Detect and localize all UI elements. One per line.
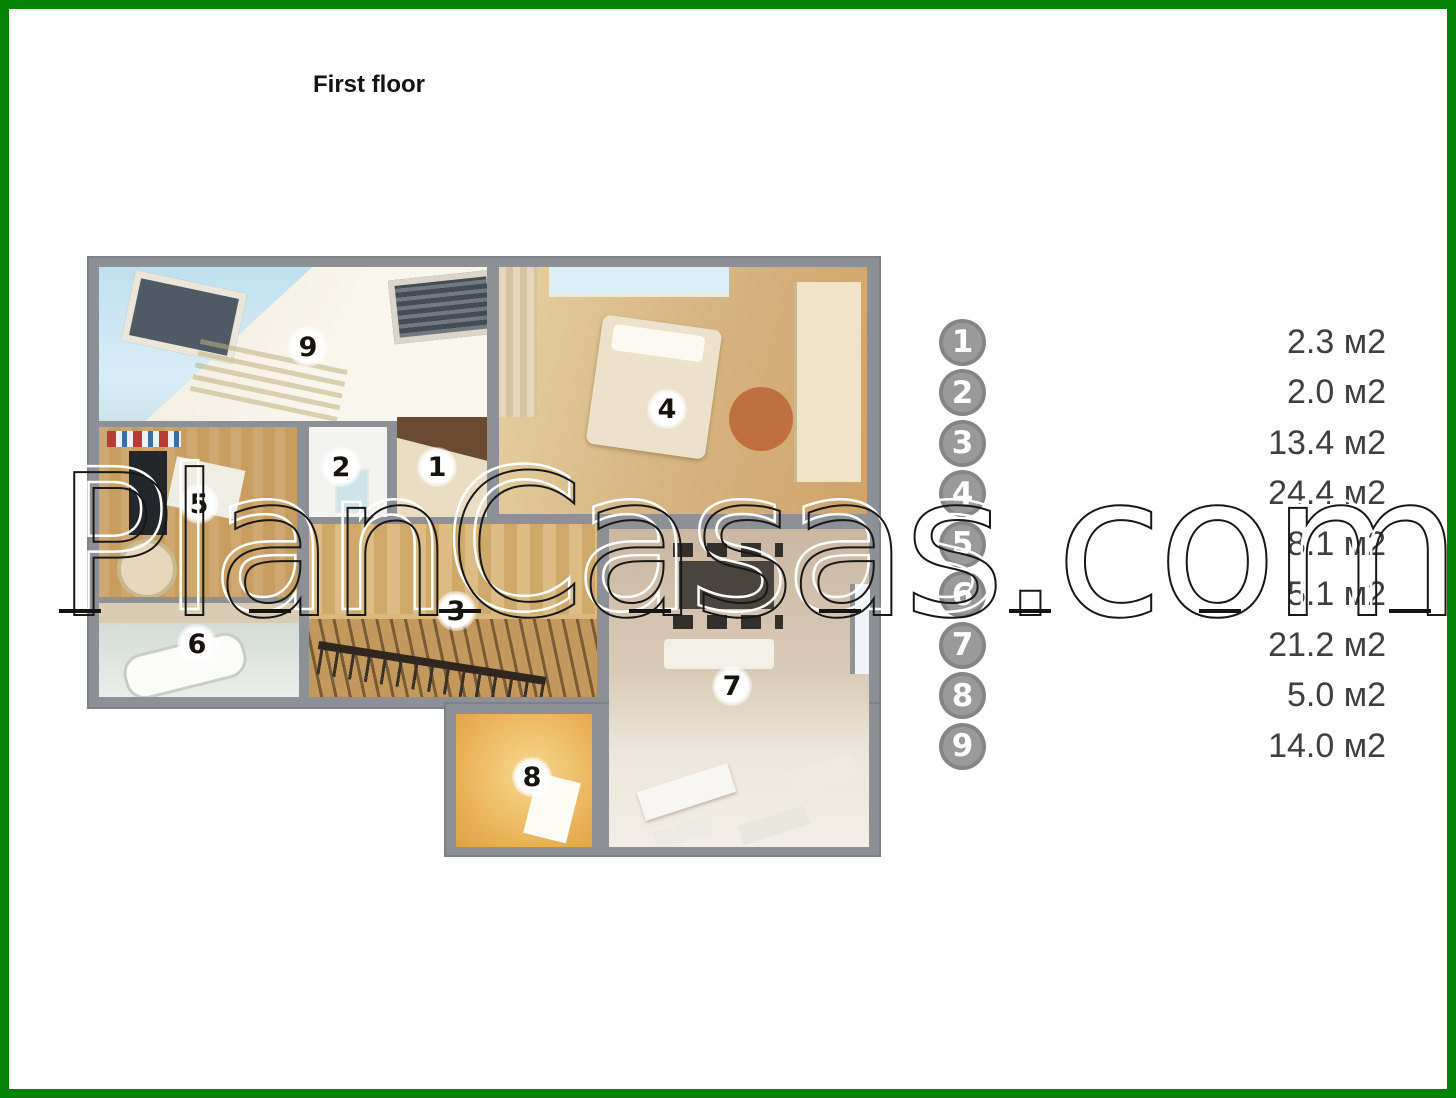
room-badge-9: 9 [288,327,328,367]
dining-chairs [673,615,783,629]
window [549,267,729,297]
legend-area-5: 8.1 м2 [986,525,1386,564]
legend-row: 8 5.0 м2 [939,671,1386,722]
appliance [129,451,167,535]
legend-area-2: 2.0 м2 [986,373,1386,412]
legend-badge-7: 7 [939,622,986,669]
legend-area-4: 24.4 м2 [986,474,1386,513]
legend-row: 1 2.3 м2 [939,317,1386,368]
wardrobe [794,282,861,482]
legend-badge-3: 3 [939,420,986,467]
room-badge-1: 1 [417,447,457,487]
legend-badge-4: 4 [939,470,986,517]
legend-row: 7 21.2 м2 [939,620,1386,671]
rug [738,805,811,846]
legend-badge-5: 5 [939,521,986,568]
window [850,584,869,674]
room-badge-8: 8 [512,757,552,797]
legend-row: 3 13.4 м2 [939,418,1386,469]
legend-area-3: 13.4 м2 [986,424,1386,463]
legend-badge-1: 1 [939,319,986,366]
page: First floor [0,0,1456,1098]
page-title: First floor [313,71,425,99]
legend-row: 5 8.1 м2 [939,519,1386,570]
legend-badge-2: 2 [939,369,986,416]
legend-row: 6 5.1 м2 [939,570,1386,621]
counter [785,753,860,799]
round-chair [729,387,793,451]
round-table [117,539,177,597]
kitchen-island [637,763,737,821]
floor-plan-image: 1 2 3 4 5 6 7 8 9 [87,256,881,857]
dining-chairs [673,543,783,557]
room-badge-2: 2 [321,447,361,487]
curtains [499,267,537,417]
room-badge-6: 6 [177,624,217,664]
skylight-window [388,270,487,345]
legend-badge-8: 8 [939,672,986,719]
room-badge-7: 7 [712,666,752,706]
area-legend: 1 2.3 м2 2 2.0 м2 3 13.4 м2 4 24.4 м2 5 … [939,317,1386,772]
legend-row: 9 14.0 м2 [939,721,1386,772]
legend-area-7: 21.2 м2 [986,626,1386,665]
room-4-bedroom-area [499,267,867,514]
shelf-band [99,603,299,623]
legend-row: 4 24.4 м2 [939,469,1386,520]
legend-area-8: 5.0 м2 [986,676,1386,715]
legend-area-6: 5.1 м2 [986,575,1386,614]
legend-badge-6: 6 [939,571,986,618]
legend-area-1: 2.3 м2 [986,323,1386,362]
legend-row: 2 2.0 м2 [939,368,1386,419]
room-badge-3: 3 [436,591,476,631]
room-badge-5: 5 [179,484,219,524]
rug [653,814,716,847]
pillow [611,324,706,363]
bed [586,314,723,459]
room-badge-4: 4 [647,389,687,429]
shelf [107,431,181,447]
legend-area-9: 14.0 м2 [986,727,1386,766]
dining-table [679,561,774,609]
legend-badge-9: 9 [939,723,986,770]
sofa [664,639,774,669]
